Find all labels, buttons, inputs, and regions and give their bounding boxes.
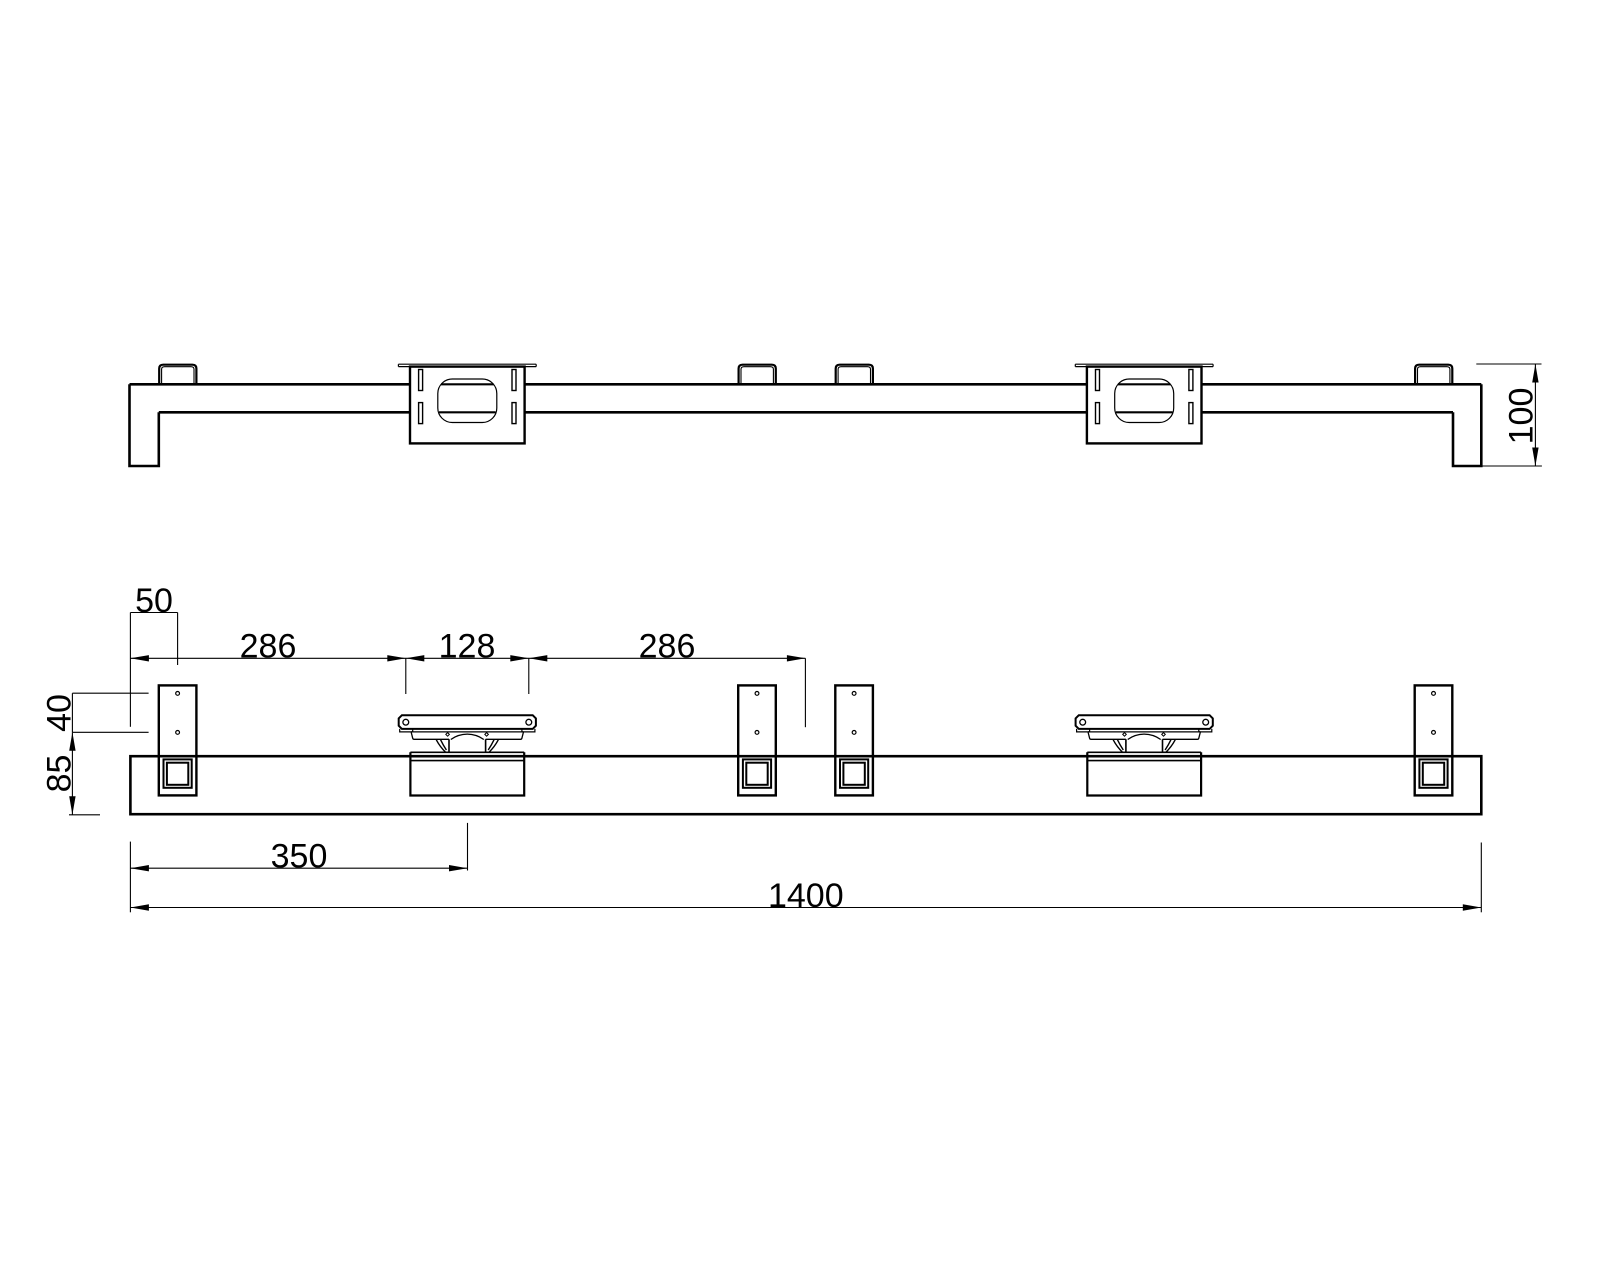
svg-text:350: 350	[271, 837, 328, 875]
svg-text:100: 100	[1503, 388, 1541, 445]
svg-text:1400: 1400	[768, 877, 844, 915]
svg-text:85: 85	[41, 755, 79, 793]
svg-text:128: 128	[439, 628, 496, 666]
svg-text:50: 50	[135, 582, 173, 620]
svg-text:40: 40	[41, 694, 79, 732]
svg-text:286: 286	[240, 628, 297, 666]
svg-text:286: 286	[639, 628, 696, 666]
